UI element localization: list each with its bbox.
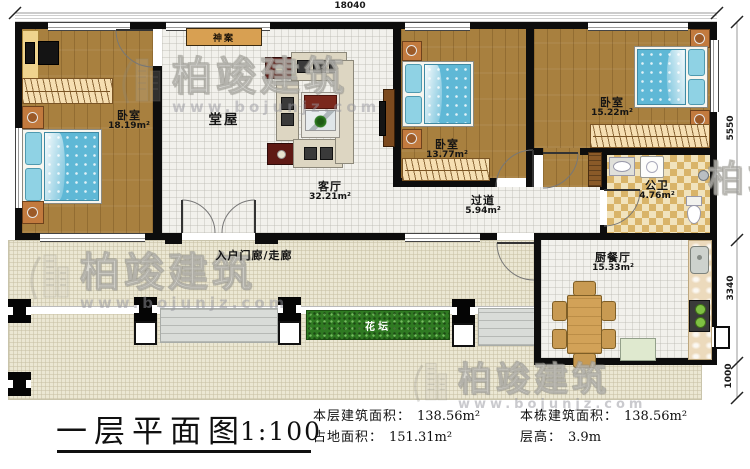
floor-plan-canvas: 花坛 <box>0 0 750 469</box>
nightstand <box>22 106 44 129</box>
sofa-left <box>276 81 299 141</box>
wall-bathroom-left-b <box>600 225 607 233</box>
flower-bed: 花坛 <box>306 310 450 340</box>
stat-storey-height: 层高：3.9m <box>520 427 687 448</box>
altar-label: 神案 <box>213 31 235 44</box>
column-pedestal <box>452 323 475 347</box>
side-table <box>267 143 294 165</box>
room-label-hall: 堂屋 <box>209 113 240 128</box>
bed-pillows <box>25 132 42 201</box>
speaker <box>25 42 35 64</box>
pillow <box>25 132 42 165</box>
dining-table <box>567 295 602 354</box>
dimension-right-main: 5550 <box>726 106 736 150</box>
mattress <box>44 132 99 201</box>
wall-kitchen-left <box>534 240 541 365</box>
bed <box>634 46 708 108</box>
room-label-bedroom2: 卧室 13.77m² <box>426 139 468 161</box>
dining-chair <box>552 329 567 349</box>
kitchen-side-door <box>714 326 730 349</box>
sofa-cushion <box>320 147 333 160</box>
toilet <box>686 196 702 224</box>
room-label-bedroom3: 卧室 15.22m² <box>591 97 633 119</box>
roof-eave-lines <box>15 14 717 22</box>
column-pedestal <box>134 321 157 345</box>
wardrobe <box>590 124 710 148</box>
bathroom-sink <box>609 157 635 176</box>
dining-chair <box>573 281 596 296</box>
entrance-sill <box>182 233 255 240</box>
shower-head <box>698 170 709 181</box>
nightstand <box>402 129 422 149</box>
window-bedroom1-top <box>48 22 130 31</box>
bed <box>22 129 102 204</box>
dimension-right-terrace: 1000 <box>724 354 734 398</box>
window-bedroom3-top <box>588 22 688 31</box>
room-label-porch: 入户门廊/走廊 <box>215 250 292 262</box>
entry-steps-kitchen <box>478 308 536 346</box>
title-underline <box>57 450 311 453</box>
fridge <box>620 338 656 361</box>
altar-table: 神案 <box>186 28 262 46</box>
room-label-kitchen: 厨餐厅 15.33m² <box>592 252 634 274</box>
stat-floor-area: 本层建筑面积：138.56m² <box>313 406 480 427</box>
dimension-top: 18040 <box>320 1 380 11</box>
plan-title: 一层平面图 <box>56 406 246 451</box>
wall-bedroom3-stub <box>534 148 543 155</box>
pillow <box>688 79 705 106</box>
mattress <box>424 64 471 124</box>
window-bedroom1-bottom <box>40 233 145 242</box>
room-label-living: 客厅 32.21m² <box>309 181 351 203</box>
column-pedestal <box>278 321 301 345</box>
porch-column <box>134 297 157 321</box>
wardrobe <box>402 158 490 181</box>
pillow <box>25 168 42 201</box>
table-runner <box>304 95 337 109</box>
burner <box>695 304 706 315</box>
stove <box>689 300 710 332</box>
bed <box>402 61 474 127</box>
mattress <box>637 49 686 105</box>
side-table <box>265 57 292 79</box>
sofa-cushion <box>297 60 310 73</box>
bed-pillows <box>688 49 705 105</box>
coffee-table <box>301 92 340 138</box>
dimension-right-kitchen: 3340 <box>726 266 736 310</box>
wardrobe <box>22 78 113 104</box>
plan-scale: 1:100 <box>240 417 322 446</box>
entrance-jamb-right <box>255 233 278 244</box>
pillow <box>405 96 422 125</box>
stat-land-area: 占地面积：151.31m² <box>313 427 480 448</box>
stats-column-1: 本层建筑面积：138.56m² 占地面积：151.31m² <box>313 406 480 448</box>
wall-bedroom2-bedroom3 <box>526 22 534 187</box>
dining-chair <box>601 301 616 321</box>
stat-building-area: 本栋建筑面积：138.56m² <box>520 406 687 427</box>
porch-column <box>278 297 301 321</box>
porch-column <box>8 299 31 323</box>
pillow <box>688 49 705 76</box>
hall-closet <box>588 152 602 187</box>
entry-steps-main <box>160 308 278 343</box>
kitchen-entry-gap <box>497 233 534 240</box>
window-bedroom3-right <box>710 40 719 112</box>
flower-bed-label: 花坛 <box>365 318 391 333</box>
sofa-cushion <box>304 147 317 160</box>
porch-column <box>8 372 31 396</box>
room-label-corridor: 过道 5.94m² <box>465 195 501 217</box>
kitchen-sink <box>690 246 709 274</box>
toilet-bowl <box>687 205 701 224</box>
sofa-cushion <box>313 60 326 73</box>
wall-bedroom1-living <box>153 66 162 233</box>
nightstand <box>22 201 44 224</box>
porch-column <box>452 299 475 323</box>
plant <box>314 115 327 128</box>
dining-chair <box>601 329 616 349</box>
sofa-cushion <box>281 113 294 126</box>
window-bedroom2-top <box>405 22 470 31</box>
tv <box>38 41 59 65</box>
nightstand <box>402 41 422 61</box>
bed-pillows <box>405 64 422 124</box>
stats-column-2: 本栋建筑面积：138.56m² 层高：3.9m <box>520 406 687 448</box>
room-label-bedroom1: 卧室 18.19m² <box>108 110 150 132</box>
window-corridor-bottom <box>405 233 480 242</box>
sofa-cushion <box>281 97 294 110</box>
entrance-jamb-left <box>165 233 182 244</box>
room-label-bathroom: 公卫 4.76m² <box>639 180 675 202</box>
dining-chair <box>573 353 596 368</box>
burner <box>695 317 706 328</box>
wall-tv <box>379 101 386 136</box>
pillow <box>405 64 422 93</box>
washing-machine <box>640 156 664 178</box>
dining-chair <box>552 301 567 321</box>
